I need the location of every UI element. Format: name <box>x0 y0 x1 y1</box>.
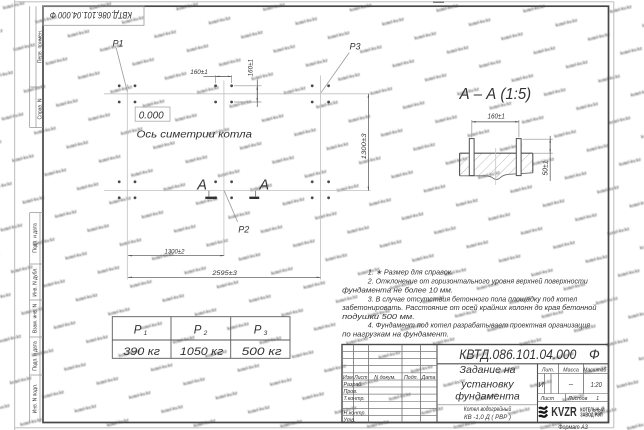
svg-text:–: – <box>568 379 574 388</box>
svg-text:160±1: 160±1 <box>190 69 208 76</box>
svg-text:1: 1 <box>596 396 599 402</box>
svg-text:Подп. и дата: Подп. и дата <box>33 341 39 371</box>
svg-text:2: 2 <box>203 330 208 337</box>
svg-text:И: И <box>538 380 544 389</box>
svg-text:по нагрузкам на фундамент.: по нагрузкам на фундамент. <box>342 329 449 338</box>
svg-text:1050 кг: 1050 кг <box>180 346 224 358</box>
svg-text:Перв. примен.: Перв. примен. <box>37 30 43 63</box>
svg-text:Взам. инв. N: Взам. инв. N <box>33 304 39 334</box>
svg-text:КВТД.086.101.04.000: КВТД.086.101.04.000 <box>459 347 576 362</box>
svg-text:1: 1 <box>144 330 148 337</box>
svg-text:ЗАВОД РЭП: ЗАВОД РЭП <box>580 413 602 419</box>
svg-text:Р: Р <box>134 324 142 336</box>
svg-text:Масса: Масса <box>563 368 579 374</box>
svg-text:1:20: 1:20 <box>591 380 603 389</box>
svg-text:Инв. N подл.: Инв. N подл. <box>33 384 39 413</box>
svg-text:160±1: 160±1 <box>487 114 505 121</box>
svg-text:Р: Р <box>194 324 202 336</box>
svg-text:Т.контр.: Т.контр. <box>344 396 365 402</box>
svg-text:3: 3 <box>264 330 268 337</box>
svg-text:Дата: Дата <box>421 375 436 381</box>
svg-text:1300±3: 1300±3 <box>361 133 368 159</box>
svg-text:Формат А3: Формат А3 <box>558 424 588 430</box>
svg-text:фундамента не более 10 мм.: фундамента не более 10 мм. <box>342 285 453 294</box>
svg-text:Р1: Р1 <box>113 39 124 49</box>
svg-text:фундамента: фундамента <box>455 390 520 402</box>
svg-text:500 кг: 500 кг <box>242 346 283 358</box>
svg-text:Масштаб: Масштаб <box>583 368 607 374</box>
svg-text:Справ. N: Справ. N <box>37 98 43 119</box>
svg-text:Пров.: Пров. <box>344 389 358 395</box>
svg-text:2595±3: 2595±3 <box>211 270 237 277</box>
svg-text:0.000: 0.000 <box>139 110 164 122</box>
svg-text:А – А (1:5): А – А (1:5) <box>459 86 531 103</box>
svg-text:Инв. N дубл.: Инв. N дубл. <box>33 267 39 296</box>
svg-text:N докум.: N докум. <box>374 375 395 381</box>
svg-text:1. ∗ Размер для справок.: 1. ∗ Размер для справок. <box>368 267 453 276</box>
svg-text:Утв.: Утв. <box>344 418 356 424</box>
svg-text:Лист: Лист <box>540 396 555 402</box>
svg-text:установку: установку <box>460 378 514 390</box>
svg-text:Р2: Р2 <box>238 225 249 235</box>
svg-text:Р: Р <box>254 324 262 336</box>
svg-text:Лит.: Лит. <box>541 368 554 374</box>
svg-text:Подп. и дата: Подп. и дата <box>33 223 39 253</box>
svg-text:КВ -1,0 Д ( РВР ): КВ -1,0 Д ( РВР ) <box>464 414 511 421</box>
svg-text:А: А <box>196 177 207 193</box>
svg-text:Ф: Ф <box>589 347 600 362</box>
svg-text:Котел водогрейный: Котел водогрейный <box>464 405 512 413</box>
svg-text:50±1: 50±1 <box>543 160 550 175</box>
svg-text:Задание на: Задание на <box>460 364 516 376</box>
svg-text:Листов: Листов <box>567 396 588 402</box>
svg-text:подушки 500 мм.: подушки 500 мм. <box>342 312 415 321</box>
svg-text:Ось симетрии котла: Ось симетрии котла <box>137 129 253 140</box>
svg-text:Подп.: Подп. <box>404 375 418 381</box>
svg-text:390 кг: 390 кг <box>123 346 160 358</box>
svg-text:Н.контр.: Н.контр. <box>344 410 366 416</box>
svg-text:KVZR: KVZR <box>551 404 577 419</box>
svg-text:Разраб.: Разраб. <box>344 382 363 388</box>
svg-text:КВТД.086.101.04.000 Ф: КВТД.086.101.04.000 Ф <box>50 9 132 20</box>
svg-text:А: А <box>258 177 269 193</box>
svg-text:160±1: 160±1 <box>247 59 254 77</box>
svg-text:Р3: Р3 <box>350 42 361 52</box>
svg-text:Изм.Лист: Изм.Лист <box>343 375 368 381</box>
svg-text:1300±2: 1300±2 <box>165 248 185 255</box>
